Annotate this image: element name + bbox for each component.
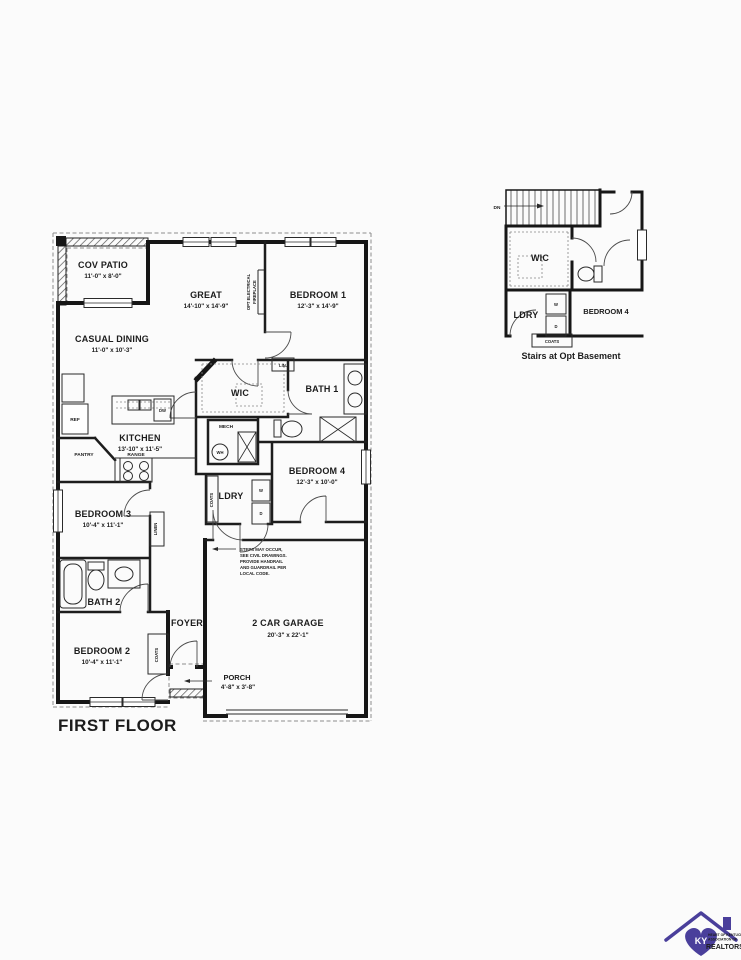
bath2-toilet-tank [88,562,104,570]
inset-label-washer: W [554,302,558,307]
label-bath1: BATH 1 [305,384,338,394]
logo-line3: REALTORS® [706,943,741,951]
label-dw: DW [159,408,166,413]
label-mech: MECH [219,424,234,430]
bath1-toilet-tank [274,420,281,437]
label-wic: WIC [231,388,249,398]
logo-line2: ASSOCIATION OF [708,938,737,942]
label-coats-bedroom2: COATS [154,648,159,663]
label-bath2: BATH 2 [87,597,120,607]
bath2-sink [115,567,133,581]
inset-label-bedroom4: BEDROOM 4 [583,307,629,316]
inset-toilet-bowl [578,267,594,281]
steps-note-line4: AND GUARDRAIL PER [240,565,287,570]
label-fireplace-2: FIREPLACE [252,280,257,304]
bath2-toilet-bowl [88,570,104,590]
label-lin: LIN. [279,363,287,368]
dims-cov-patio: 11'-0" x 8'-0" [84,273,121,280]
label-porch: PORCH [223,673,250,682]
inset-label-dryer: D [554,324,557,329]
label-linen: LINEN [153,523,158,536]
bath2-vanity [108,560,140,588]
dims-great: 14'-10" x 14'-9" [184,303,229,310]
label-great: GREAT [190,290,222,300]
label-fireplace-1: OPT ELECTRICAL [246,273,251,310]
dims-garage: 20'-3" x 22'-1" [267,632,308,639]
dims-casual-dining: 11'-0" x 10'-3" [92,347,133,354]
floor-plan-page: COV PATIO 11'-0" x 8'-0" CASUAL DINING 1… [0,0,741,960]
realtors-logo: KY HEART OF KENTUCKY ASSOCIATION OF REAL… [666,913,741,956]
inset-label-ldry: LDRY [514,310,539,320]
steps-note-line1: STEPS MAY OCCUR, [240,547,283,552]
label-wh: WH [217,450,224,455]
inset-label-coats: COATS [545,339,560,344]
label-garage: 2 CAR GARAGE [252,618,323,628]
dims-porch: 4'-8" x 3'-8" [221,684,255,691]
sink-basin-left [128,400,139,410]
fireplace-niche [258,270,264,314]
steps-note-line5: LOCAL CODE. [240,571,270,576]
steps-note-line2: SEE CIVIL DRAWINGS. [240,553,287,558]
label-bedroom3: BEDROOM 3 [75,509,131,519]
label-ref: REF [70,417,80,423]
label-foyer: FOYER [171,618,203,628]
steps-note-line3: PROVIDE HANDRAIL [240,559,283,564]
floor-plan-drawing: COV PATIO 11'-0" x 8'-0" CASUAL DINING 1… [0,0,741,960]
label-casual-dining: CASUAL DINING [75,334,149,344]
page-title: FIRST FLOOR [58,716,177,735]
label-coats-ldry: COATS [209,493,214,508]
label-washer: W [259,488,263,493]
label-bedroom4: BEDROOM 4 [289,466,345,476]
dims-kitchen: 13'-10" x 11'-5" [118,446,162,453]
label-kitchen: KITCHEN [119,433,160,443]
dims-bedroom1: 12'-3" x 14'-9" [297,303,338,310]
bath1-sink-2 [348,393,362,407]
inset-label-wic: WIC [531,253,549,263]
label-dn: DN [494,205,501,211]
leader-lines [184,547,236,683]
logo-chimney [723,917,731,930]
steps-note: STEPS MAY OCCUR, SEE CIVIL DRAWINGS. PRO… [240,547,287,576]
bath1-sink-1 [348,371,362,385]
dims-bedroom4: 12'-3" x 10'-0" [296,479,337,486]
kitchen-fixtures [62,374,196,482]
stairs [506,190,600,226]
inset-toilet-tank [594,266,602,282]
label-range: RANGE [127,452,145,458]
basement-inset: DN WIC LDRY W D BEDROOM 4 COATS Stairs a… [494,190,647,361]
sink-basin-right [140,400,151,410]
label-cov-patio: COV PATIO [78,260,128,270]
bath1-toilet-bowl [282,421,302,437]
label-bedroom1: BEDROOM 1 [290,290,346,300]
logo-line1: HEART OF KENTUCKY [708,933,741,937]
label-pantry: PANTRY [74,452,94,458]
label-dryer: D [259,511,262,516]
dims-bedroom3: 10'-4" x 11'-1" [83,522,124,529]
inset-caption: Stairs at Opt Basement [521,351,620,361]
label-ldry: LDRY [219,491,244,501]
label-bedroom2: BEDROOM 2 [74,646,130,656]
range [120,458,152,482]
dims-bedroom2: 10'-4" x 11'-1" [82,659,123,666]
